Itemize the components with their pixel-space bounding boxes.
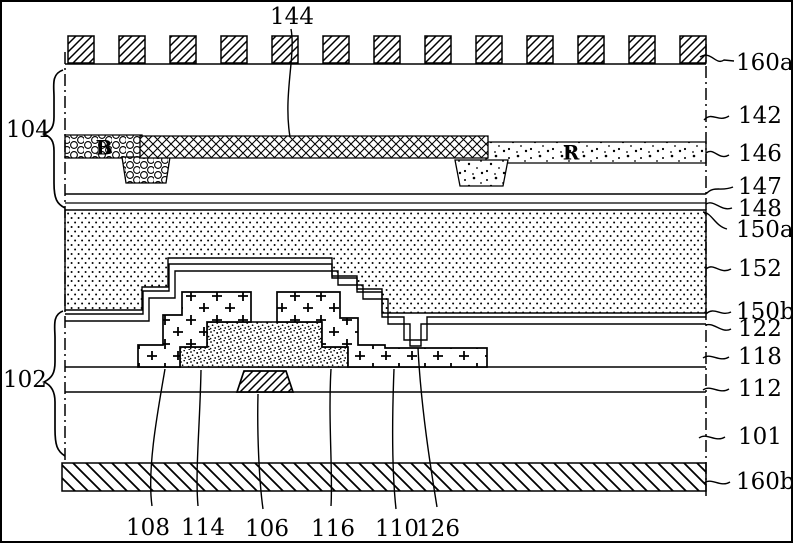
label-150a: 150a [736, 217, 793, 243]
label-160a: 160a [736, 50, 793, 76]
label-146: 146 [738, 141, 782, 167]
letter-B-blue-region: B [96, 136, 113, 160]
label-102: 102 [3, 367, 47, 393]
label-126: 126 [416, 516, 460, 542]
label-160b: 160b [736, 469, 793, 495]
label-114: 114 [181, 515, 225, 541]
label-142: 142 [738, 103, 782, 129]
label-106: 106 [245, 516, 289, 542]
blue-filter-plug [122, 157, 170, 183]
layer-144-crosshatch [140, 136, 488, 158]
label-104: 104 [6, 117, 50, 143]
diagram-canvas: 144 104 102 160a 142 146 147 148 150a 15… [0, 0, 793, 543]
label-112: 112 [738, 376, 782, 402]
red-filter-plug [455, 160, 508, 186]
patent-cross-section-figure: 144 104 102 160a 142 146 147 148 150a 15… [0, 0, 793, 543]
label-110: 110 [375, 516, 419, 542]
gate-electrode-106 [237, 371, 293, 392]
label-116: 116 [311, 516, 355, 542]
label-118: 118 [738, 344, 782, 370]
label-108: 108 [126, 515, 170, 541]
label-101: 101 [738, 424, 782, 450]
polarizer-160b [62, 463, 706, 491]
label-122: 122 [738, 316, 782, 342]
label-152: 152 [738, 256, 782, 282]
label-144: 144 [270, 4, 314, 30]
letter-R-red-region: R [563, 141, 580, 165]
